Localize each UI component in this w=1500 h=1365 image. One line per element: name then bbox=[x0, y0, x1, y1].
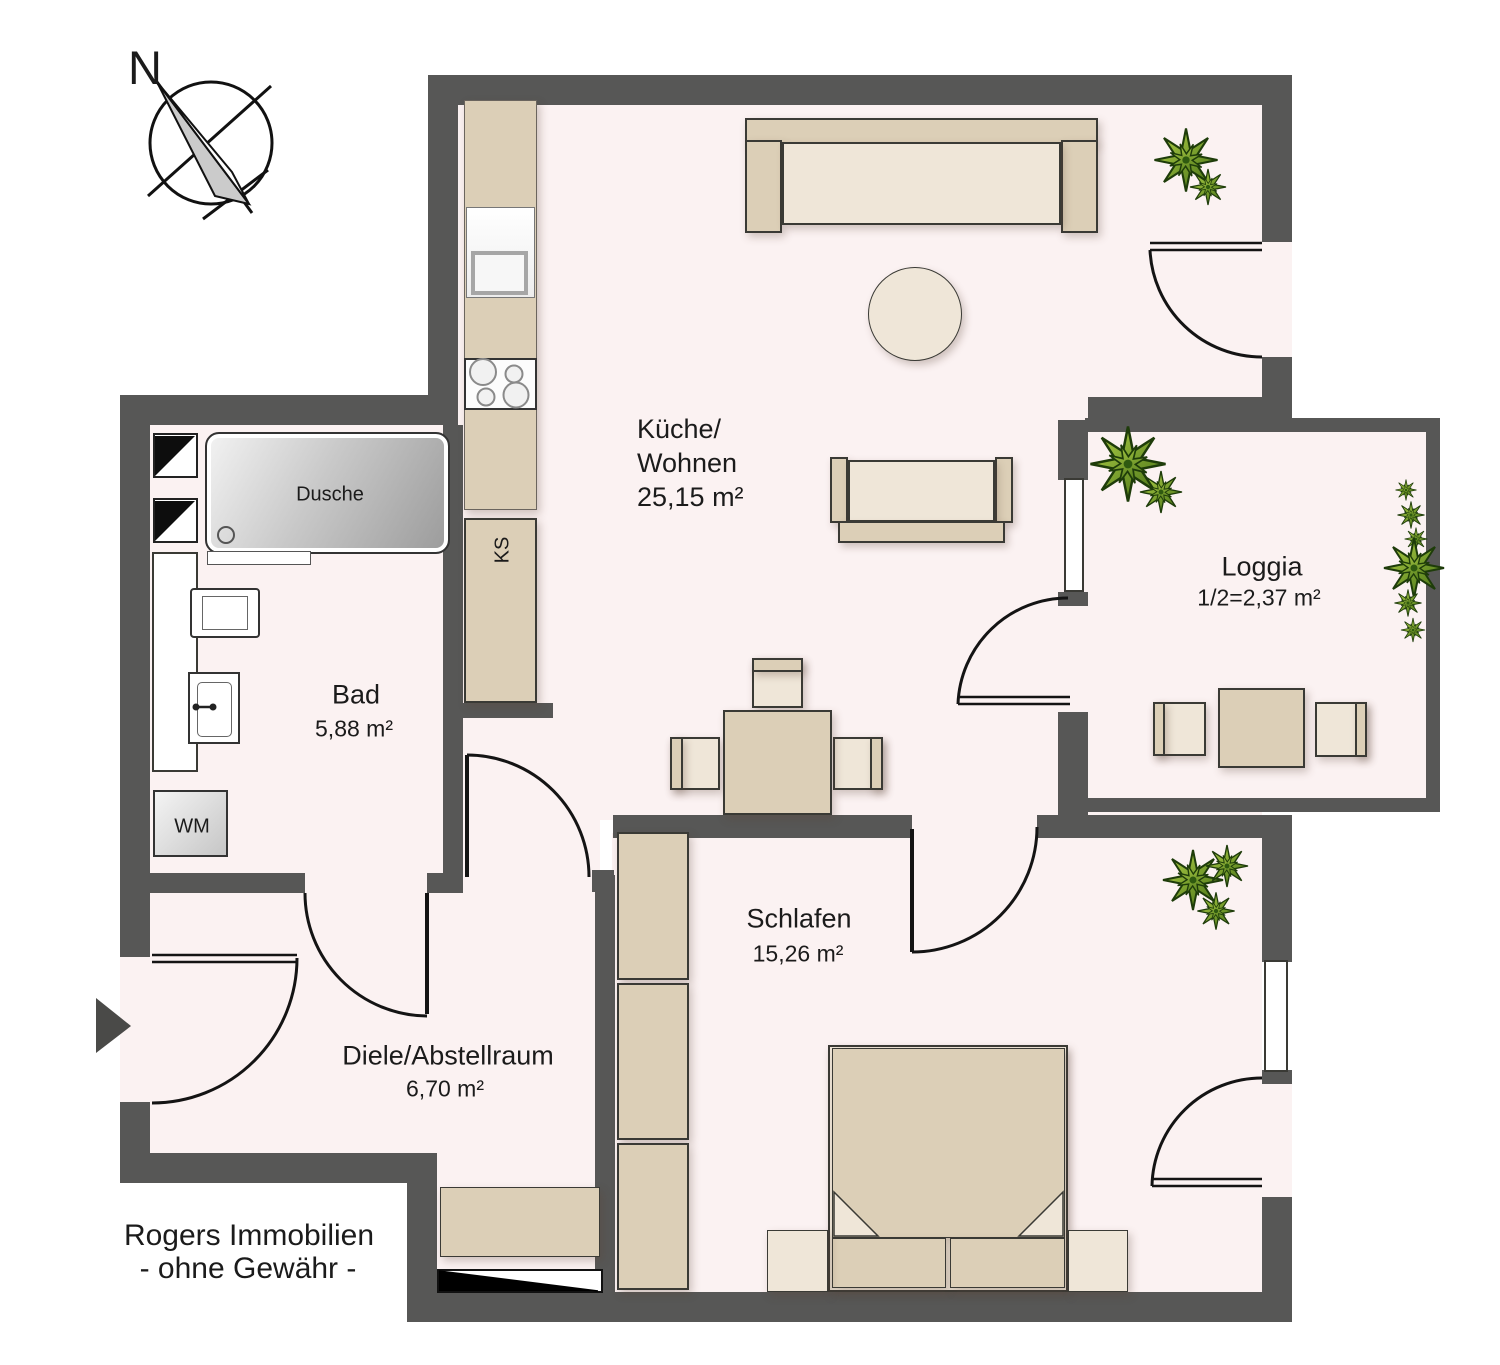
bed-blanket bbox=[832, 1048, 1065, 1238]
sofa-back bbox=[745, 118, 1098, 144]
floor-loggia-door-gap bbox=[1058, 604, 1088, 714]
wall-right-bed-stub bbox=[1262, 1070, 1292, 1084]
room-area-bad: 5,88 m² bbox=[315, 716, 393, 743]
wall-top bbox=[428, 75, 1292, 105]
room-name-kueche-line2: Wohnen bbox=[637, 446, 744, 480]
wall-right-bed-upper bbox=[1262, 830, 1292, 962]
kitchen-sink-basin bbox=[471, 251, 528, 295]
shower-entry bbox=[207, 551, 311, 565]
fixture-label-washing-machine: WM bbox=[174, 816, 210, 839]
living-loggia-window bbox=[1064, 478, 1084, 592]
toilet-seat bbox=[202, 596, 248, 630]
compass-icon bbox=[148, 82, 272, 219]
washbasin-bowl bbox=[197, 682, 232, 737]
sofa-armrest bbox=[745, 140, 782, 233]
wall-baddoor-jamb bbox=[427, 873, 463, 893]
loggia-chair-back bbox=[1355, 702, 1367, 757]
nightstand bbox=[1068, 1230, 1128, 1292]
wardrobe bbox=[617, 1143, 689, 1290]
footer-line-1: Rogers Immobilien bbox=[124, 1219, 374, 1253]
wall-right-liv-upper bbox=[1262, 75, 1292, 242]
floor-plan: N Küche/ Wohnen 25,15 m² Bad 5,88 m² Die… bbox=[0, 0, 1500, 1365]
wall-loggia-liv-c bbox=[1058, 712, 1088, 838]
kitchen-hob bbox=[464, 358, 537, 410]
floor-bad-door-gap bbox=[305, 873, 429, 895]
room-area-schlafen: 15,26 m² bbox=[753, 941, 844, 968]
sofa2-armrest bbox=[995, 457, 1013, 523]
floor-kueche-alcove bbox=[455, 700, 600, 892]
room-area-kueche: 25,15 m² bbox=[637, 480, 744, 514]
room-area-diele: 6,70 m² bbox=[406, 1076, 484, 1103]
wardrobe bbox=[617, 983, 689, 1140]
wall-bad-top bbox=[120, 395, 458, 425]
sofa-armrest bbox=[1061, 140, 1098, 233]
dining-chair-back bbox=[752, 658, 803, 672]
sideboard bbox=[440, 1187, 600, 1257]
floor-schlafen-door-gap bbox=[912, 815, 1037, 840]
shaft-box bbox=[153, 498, 198, 543]
wall-loggia-liv-a bbox=[1058, 420, 1088, 480]
wall-loggia-bottom bbox=[1085, 798, 1440, 812]
sofa2-armrest bbox=[830, 457, 848, 523]
wall-bottom bbox=[407, 1292, 1292, 1322]
floor-livingdoor-gap bbox=[1262, 242, 1292, 358]
bed-pillow bbox=[832, 1238, 946, 1288]
room-name-bad: Bad bbox=[332, 680, 380, 711]
wall-kitchen-bottom bbox=[443, 703, 553, 718]
wall-right-bed-lower bbox=[1262, 1197, 1292, 1322]
room-name-loggia: Loggia bbox=[1221, 552, 1302, 583]
dining-chair-back bbox=[670, 737, 683, 790]
floor-entrance-gap bbox=[120, 957, 152, 1103]
floor-bedroomdoor-gap bbox=[1262, 1082, 1292, 1198]
loggia-table bbox=[1218, 688, 1305, 768]
coffee-table bbox=[868, 267, 962, 361]
wall-kitchen-west bbox=[428, 75, 458, 425]
wall-bad-bottom bbox=[120, 873, 305, 893]
dining-chair-back bbox=[870, 737, 883, 790]
room-name-kueche-line1: Küche/ bbox=[637, 412, 744, 446]
sofa2-seat bbox=[848, 460, 995, 522]
sofa-seat bbox=[782, 142, 1061, 225]
room-area-loggia: 1/2=2,37 m² bbox=[1197, 585, 1320, 612]
room-label-kueche-wohnen: Küche/ Wohnen 25,15 m² bbox=[637, 412, 744, 514]
bed-pillow bbox=[950, 1238, 1065, 1288]
wedge-box bbox=[437, 1269, 603, 1293]
room-name-diele: Diele/Abstellraum bbox=[342, 1041, 554, 1072]
footer-line-2: - ohne Gewähr - bbox=[140, 1252, 357, 1286]
fixture-label-shower: Dusche bbox=[296, 484, 364, 507]
nightstand bbox=[767, 1230, 828, 1292]
floor-diele bbox=[150, 890, 598, 1155]
wall-diele-bottom bbox=[120, 1153, 437, 1183]
compass-north-label: N bbox=[128, 40, 162, 95]
room-name-schlafen: Schlafen bbox=[746, 904, 851, 935]
kitchen-counter bbox=[464, 100, 537, 510]
dining-table bbox=[723, 710, 832, 815]
shaft-box bbox=[153, 433, 198, 478]
wall-loggia-liv-b bbox=[1058, 592, 1088, 606]
wardrobe bbox=[617, 832, 689, 980]
bedroom-window bbox=[1264, 960, 1288, 1072]
fixture-label-fridge: KS bbox=[492, 537, 515, 564]
loggia-chair-back bbox=[1153, 702, 1165, 756]
wall-loggia-right bbox=[1426, 418, 1440, 812]
wall-loggia-top bbox=[1085, 418, 1440, 432]
sofa2-back bbox=[838, 521, 1005, 543]
